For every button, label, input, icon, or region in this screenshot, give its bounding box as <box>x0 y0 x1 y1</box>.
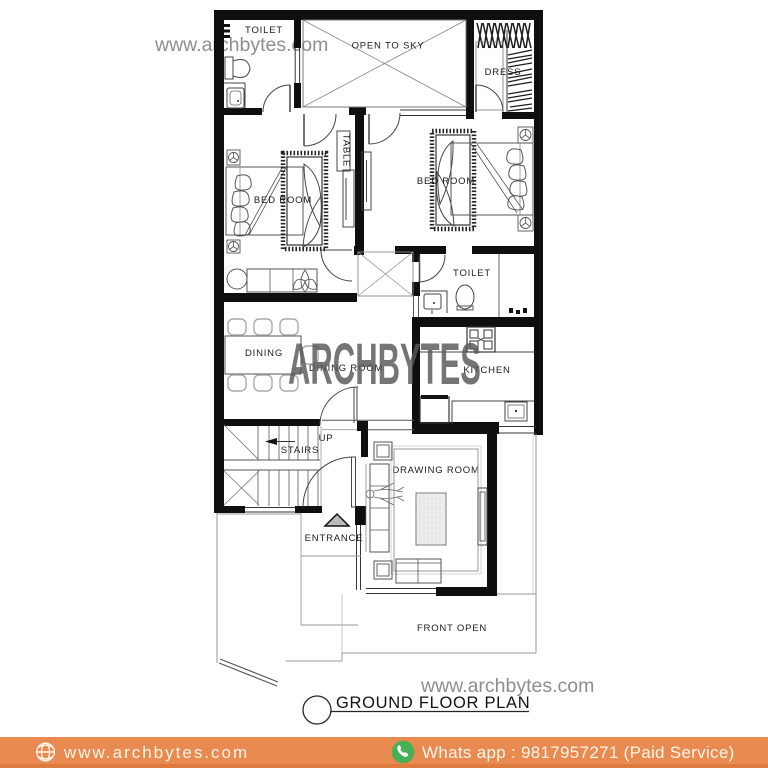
svg-text:ARCHBYTES: ARCHBYTES <box>288 332 481 397</box>
svg-text:STAIRS: STAIRS <box>281 445 319 456</box>
svg-text:FRONT OPEN: FRONT OPEN <box>417 623 487 634</box>
svg-text:DRAWING ROOM: DRAWING ROOM <box>392 465 479 476</box>
svg-text:DINING: DINING <box>245 348 283 359</box>
svg-text:www.archbytes.com: www.archbytes.com <box>63 743 249 762</box>
svg-text:TABLE: TABLE <box>341 134 352 167</box>
svg-text:ENTRANCE: ENTRANCE <box>305 533 364 544</box>
svg-text:GROUND FLOOR PLAN: GROUND FLOOR PLAN <box>336 694 530 712</box>
svg-text:www.archbytes.com: www.archbytes.com <box>154 34 328 56</box>
svg-text:BED ROOM: BED ROOM <box>254 195 312 206</box>
svg-text:DRESS: DRESS <box>485 67 522 78</box>
svg-text:Whats app : 9817957271 (Paid S: Whats app : 9817957271 (Paid Service) <box>422 743 735 762</box>
svg-text:OPEN TO SKY: OPEN TO SKY <box>352 41 425 52</box>
svg-text:BED ROOM: BED ROOM <box>417 176 475 187</box>
svg-text:TOILET: TOILET <box>453 268 491 279</box>
svg-text:TOILET: TOILET <box>245 25 283 36</box>
